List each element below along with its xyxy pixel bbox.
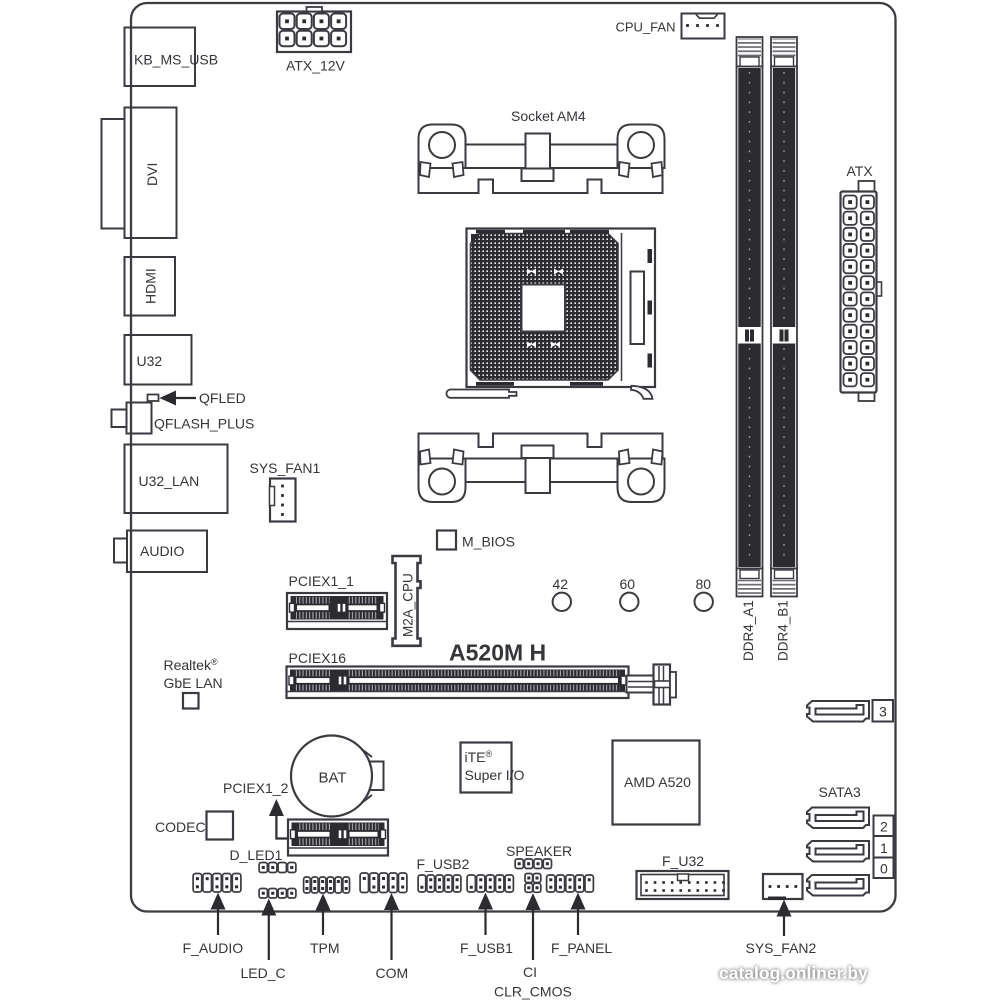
svg-text:Super I/O: Super I/O	[465, 767, 525, 783]
svg-text:A520M H: A520M H	[449, 640, 546, 666]
svg-text:F_AUDIO: F_AUDIO	[183, 940, 244, 956]
svg-text:F_USB2: F_USB2	[417, 856, 470, 872]
svg-text:U32_LAN: U32_LAN	[139, 473, 200, 489]
svg-text:PCIEX1_2: PCIEX1_2	[223, 780, 289, 796]
svg-text:0: 0	[880, 861, 888, 877]
svg-text:TPM: TPM	[310, 940, 340, 956]
svg-text:QFLASH_PLUS: QFLASH_PLUS	[154, 416, 254, 432]
svg-text:M_BIOS: M_BIOS	[462, 534, 515, 550]
svg-text:Realtek®: Realtek®	[164, 657, 218, 673]
svg-text:KB_MS_USB: KB_MS_USB	[134, 52, 218, 68]
svg-text:ATX: ATX	[847, 163, 874, 179]
svg-text:DVI: DVI	[144, 163, 160, 186]
svg-text:42: 42	[553, 576, 569, 592]
svg-text:AMD A520: AMD A520	[624, 774, 691, 790]
svg-text:2: 2	[880, 819, 888, 835]
svg-text:CODEC: CODEC	[155, 819, 206, 835]
svg-text:BAT: BAT	[319, 770, 347, 787]
svg-text:ATX_12V: ATX_12V	[286, 58, 346, 74]
svg-text:HDMI: HDMI	[143, 268, 159, 304]
svg-text:AUDIO: AUDIO	[140, 543, 184, 559]
svg-text:1: 1	[880, 840, 888, 856]
svg-text:F_PANEL: F_PANEL	[551, 940, 612, 956]
svg-text:COM: COM	[376, 965, 409, 981]
svg-text:80: 80	[696, 576, 712, 592]
svg-text:CLR_CMOS: CLR_CMOS	[494, 984, 572, 1000]
svg-text:QFLED: QFLED	[199, 390, 246, 406]
svg-text:SPEAKER: SPEAKER	[506, 843, 572, 859]
svg-text:CPU_FAN: CPU_FAN	[616, 20, 676, 35]
svg-text:F_U32: F_U32	[662, 853, 704, 869]
svg-text:SYS_FAN1: SYS_FAN1	[250, 460, 321, 476]
svg-text:CI: CI	[523, 964, 537, 980]
svg-text:PCIEX1_1: PCIEX1_1	[289, 573, 355, 589]
svg-text:Socket AM4: Socket AM4	[511, 108, 586, 124]
svg-text:GbE LAN: GbE LAN	[164, 675, 223, 691]
svg-text:U32: U32	[137, 353, 163, 369]
svg-text:SYS_FAN2: SYS_FAN2	[746, 940, 817, 956]
svg-text:PCIEX16: PCIEX16	[289, 650, 347, 666]
svg-text:SATA3: SATA3	[819, 784, 861, 800]
svg-text:M2A_CPU: M2A_CPU	[401, 573, 416, 637]
svg-text:60: 60	[620, 576, 636, 592]
svg-text:LED_C: LED_C	[241, 965, 286, 981]
svg-text:3: 3	[879, 704, 887, 720]
svg-text:DDR4_B1: DDR4_B1	[776, 600, 791, 661]
svg-text:F_USB1: F_USB1	[460, 940, 513, 956]
svg-text:D_LED1: D_LED1	[230, 847, 283, 863]
svg-text:DDR4_A1: DDR4_A1	[741, 600, 756, 661]
svg-text:catalog.onliner.by: catalog.onliner.by	[719, 963, 868, 983]
